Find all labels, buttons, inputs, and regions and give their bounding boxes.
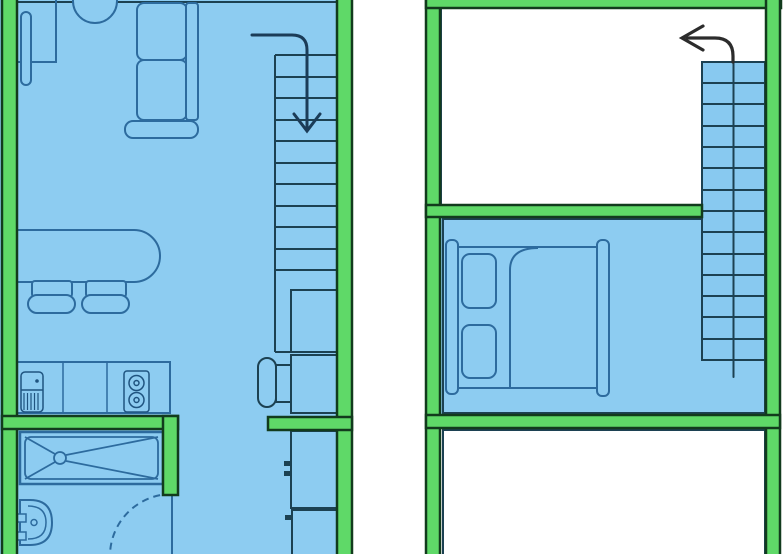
wall-right-unit-right — [766, 0, 780, 554]
wall-bedroom-bottom — [426, 415, 780, 428]
wall-hall-stub — [268, 417, 352, 430]
sofa-cushion-2 — [137, 60, 187, 120]
bed-frame — [458, 247, 598, 388]
cabinet-knob-1 — [284, 461, 292, 466]
wall-bedroom-top — [426, 205, 702, 217]
wall-right-unit-left — [426, 0, 440, 554]
tall-cabinet-1 — [291, 431, 337, 508]
stool-connector — [276, 365, 291, 402]
shower-drain — [54, 452, 66, 464]
kitchen-counter — [17, 362, 170, 413]
wall-left-unit-right — [337, 0, 352, 554]
wall-bathroom-side — [163, 416, 178, 495]
sink-faucet-dot — [35, 379, 39, 383]
dining-chair-1-seat — [28, 295, 75, 313]
stool — [258, 358, 276, 407]
sofa-cushion-1 — [137, 3, 187, 60]
sofa-backrest — [186, 3, 198, 120]
dining-chair-2-seat — [82, 295, 129, 313]
tall-cabinet-2 — [292, 510, 337, 554]
floor-plan-page — [0, 0, 783, 554]
desk-monitor-bar — [21, 12, 31, 85]
sofa-armrest — [125, 121, 198, 138]
wall-left-outer — [2, 0, 17, 554]
bed-headboard — [446, 240, 458, 394]
bed-footboard — [597, 240, 609, 396]
cabinet-knob-2 — [284, 471, 292, 476]
lower-room-outline — [443, 430, 765, 554]
dining-table — [17, 230, 160, 282]
floor-plan-svg — [0, 0, 783, 554]
wall-bathroom-top — [2, 416, 178, 429]
cabinet-knob-3 — [285, 515, 293, 520]
floor-plan-layer — [0, 0, 783, 554]
wall-right-unit-top — [426, 0, 781, 8]
